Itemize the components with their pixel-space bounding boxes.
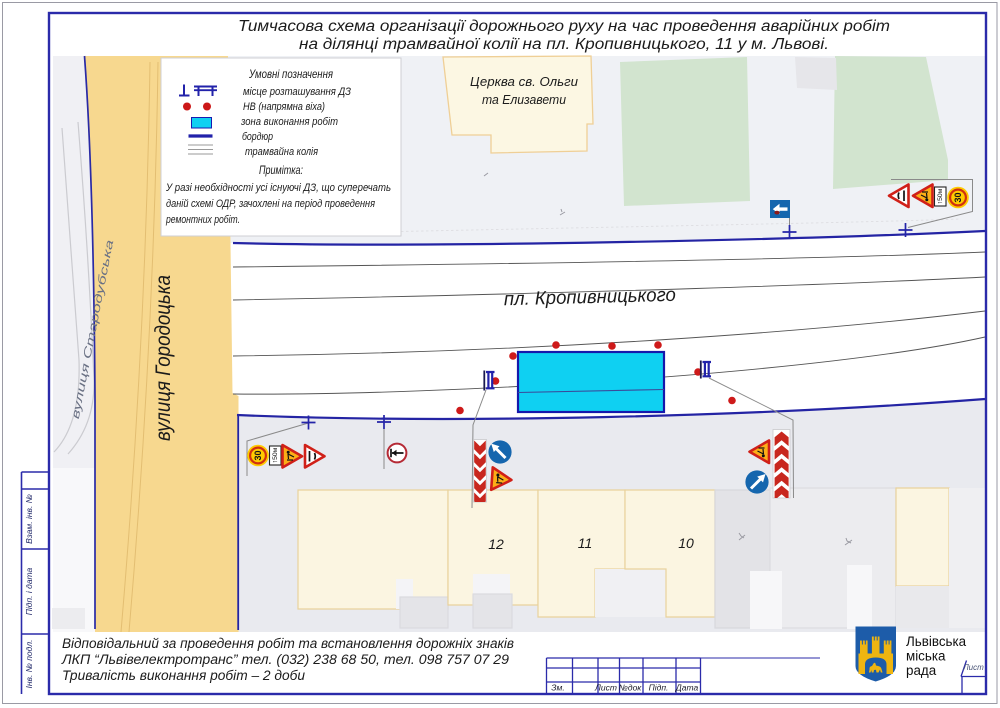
svg-text:бордюр: бордюр	[242, 131, 273, 143]
svg-text:ремонтних робіт.: ремонтних робіт.	[165, 214, 240, 226]
svg-text:Інв. № подл.: Інв. № подл.	[24, 639, 34, 688]
svg-text:вулиця Городоцька: вулиця Городоцька	[152, 275, 175, 441]
svg-text:Відповідальний за проведення р: Відповідальний за проведення робіт та вс…	[62, 636, 514, 651]
svg-text:Лист: Лист	[594, 683, 617, 693]
svg-text:Львівська: Львівська	[906, 634, 967, 649]
svg-text:НВ (напрямна віха): НВ (напрямна віха)	[243, 101, 325, 113]
svg-text:Примітка:: Примітка:	[259, 165, 303, 177]
svg-text:Церква св. Ольги: Церква св. Ольги	[470, 75, 578, 89]
svg-text:Дата: Дата	[675, 683, 699, 693]
svg-text:10: 10	[678, 535, 694, 551]
svg-text:Тривалість виконання робіт – 2: Тривалість виконання робіт – 2 доби	[62, 668, 305, 683]
svg-text:даній схемі ОДР, зачохлені на: даній схемі ОДР, зачохлені на період про…	[166, 198, 375, 210]
svg-text:Лист: Лист	[962, 663, 984, 672]
svg-text:рада: рада	[906, 663, 937, 678]
svg-text:12: 12	[488, 536, 504, 552]
svg-text:Підп.: Підп.	[649, 683, 669, 693]
svg-text:№док: №док	[619, 683, 643, 693]
svg-text:зона виконання робіт: зона виконання робіт	[240, 116, 338, 128]
svg-text:трамвайна колія: трамвайна колія	[245, 146, 318, 158]
svg-text:місце розташування ДЗ: місце розташування ДЗ	[243, 86, 351, 98]
svg-text:на ділянці трамвайної колії на: на ділянці трамвайної колії на пл. Кропи…	[299, 36, 829, 53]
svg-text:Тимчасова схема організації до: Тимчасова схема організації дорожнього р…	[238, 18, 890, 35]
svg-text:та Елизавети: та Елизавети	[482, 93, 566, 107]
svg-text:11: 11	[578, 535, 593, 551]
svg-text:міська: міська	[906, 649, 946, 664]
svg-text:Умовні позначення: Умовні позначення	[248, 69, 333, 81]
svg-text:Взам. інв. №: Взам. інв. №	[24, 494, 34, 544]
svg-text:Зм.: Зм.	[551, 683, 564, 693]
svg-text:ЛКП “Львівелектротранс” тел. (: ЛКП “Львівелектротранс” тел. (032) 238 6…	[61, 652, 510, 667]
svg-text:У разі необхідності усі існуюч: У разі необхідності усі існуючі ДЗ, що с…	[165, 182, 391, 194]
svg-text:Підп. і дата: Підп. і дата	[24, 567, 34, 615]
